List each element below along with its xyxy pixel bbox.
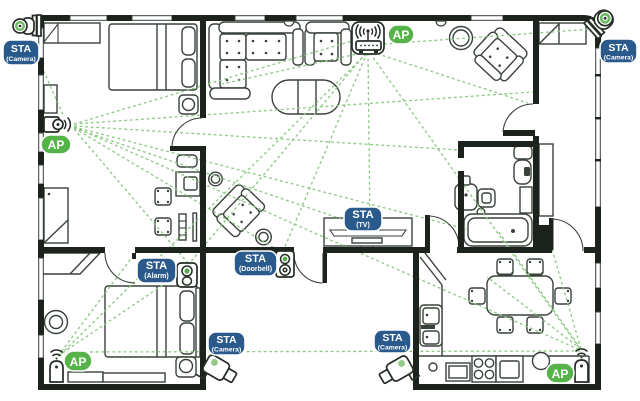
svg-text:AP: AP xyxy=(393,28,410,42)
svg-text:STA: STA xyxy=(382,332,403,344)
svg-text:(Camera): (Camera) xyxy=(378,345,407,352)
svg-text:STA: STA xyxy=(216,334,237,346)
svg-text:AP: AP xyxy=(70,355,87,369)
svg-text:(Doorbell): (Doorbell) xyxy=(239,266,272,273)
svg-text:(Camera): (Camera) xyxy=(212,347,241,354)
svg-text:(Camera): (Camera) xyxy=(6,56,35,63)
svg-text:STA: STA xyxy=(245,253,266,265)
svg-text:STA: STA xyxy=(146,260,167,272)
svg-text:(TV): (TV) xyxy=(356,222,370,229)
svg-text:STA: STA xyxy=(608,42,629,54)
svg-text:(Alarm): (Alarm) xyxy=(144,273,169,280)
svg-text:STA: STA xyxy=(11,43,32,55)
svg-text:(Camera): (Camera) xyxy=(604,55,633,62)
svg-text:AP: AP xyxy=(48,138,65,152)
svg-text:AP: AP xyxy=(552,367,569,381)
svg-text:STA: STA xyxy=(352,209,373,221)
